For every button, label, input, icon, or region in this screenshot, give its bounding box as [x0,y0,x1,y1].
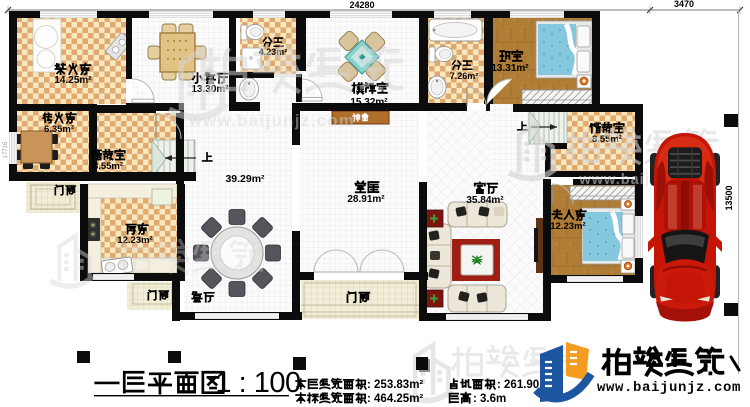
svg-text:39.29m²: 39.29m² [225,173,265,185]
svg-text:: 3.6m: : 3.6m [473,393,506,405]
svg-text:8.55m²: 8.55m² [93,161,123,172]
svg-text:15.32m²: 15.32m² [350,97,388,108]
svg-text:24280: 24280 [349,0,374,10]
svg-text:13.31m²: 13.31m² [491,63,529,74]
svg-text:www.baijunjz.com: www.baijunjz.com [188,112,355,130]
svg-text:: 464.25m²: : 464.25m² [367,393,423,405]
svg-text:6.35m²: 6.35m² [44,124,74,135]
svg-text:3470: 3470 [674,0,694,9]
svg-text:12.23m²: 12.23m² [550,221,585,232]
svg-text:www.baijunjz.com: www.baijunjz.com [597,380,741,396]
svg-text:13500: 13500 [724,185,734,210]
svg-text:14.25m²: 14.25m² [54,75,92,86]
svg-text:28.91m²: 28.91m² [347,194,385,205]
svg-text:35.84m²: 35.84m² [466,195,504,206]
svg-text:7.26m²: 7.26m² [450,71,479,81]
svg-text:1 : 100: 1 : 100 [215,367,300,399]
svg-text:: 253.83m²: : 253.83m² [367,379,423,391]
svg-text:: 261.90: : 261.90 [497,379,539,391]
svg-text:17716: 17716 [3,141,9,158]
